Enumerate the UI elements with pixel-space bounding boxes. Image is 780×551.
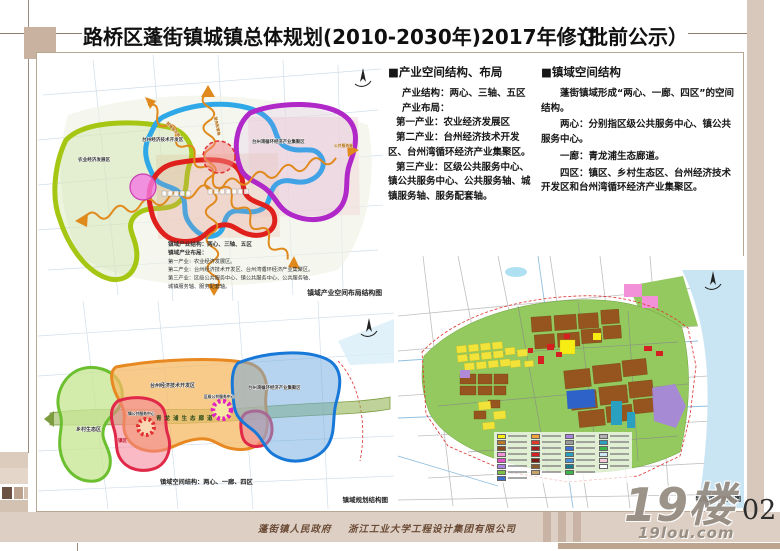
- legend-item: [565, 458, 595, 463]
- legend-swatch: [497, 434, 506, 440]
- plan-poster-page: 路桥区蓬街镇城镇总体规划(2010-2030年)2017年修订 （批前公示）: [0, 0, 780, 551]
- svg-text:第一产业：农业经济发展区。: 第一产业：农业经济发展区。: [168, 257, 235, 265]
- legend-column: [497, 434, 527, 481]
- district-center-label: 区级公共服务中心: [204, 394, 235, 399]
- sea-sliver: [338, 319, 394, 365]
- legend-swatch: [497, 452, 506, 458]
- legend-item: [531, 440, 561, 445]
- legend-item: [497, 476, 527, 481]
- legend-item: [497, 440, 527, 445]
- domain-paragraph: 一廊：青龙浦生态廊道。: [541, 150, 739, 165]
- public-axis-label: 公共服务轴: [334, 143, 353, 148]
- domain-paragraph: 四区：镇区、乡村生态区、台州经济技术开发区和台州湾循环经济产业集聚区。: [541, 167, 739, 196]
- legend-item: [565, 440, 595, 445]
- legend-column: [599, 434, 629, 481]
- svg-text:第二产业：台州经济技术开发区、台州湾循环经济产业集聚区。: 第二产业：台州经济技术开发区、台州湾循环经济产业集聚区。: [168, 265, 313, 273]
- legend-swatch: [497, 464, 506, 470]
- industry-line: 第三产业：区级公共服务中心、镇公共服务中心、公共服务轴、城镇服务轴、服务配套轴。: [388, 161, 538, 205]
- legend-swatch: [565, 446, 574, 452]
- legend-label-line: [542, 459, 561, 461]
- legend-swatch: [599, 434, 608, 440]
- town-zone-label: 镇区: [118, 437, 127, 444]
- legend-label-line: [610, 465, 629, 467]
- legend-label-line: [610, 447, 629, 449]
- mosaic-square: [24, 487, 28, 499]
- structure-inner-caption: 镇域空间结构：两心、一廊、四区: [160, 478, 254, 486]
- agriculture-zone-label: 农业经济发展区: [77, 156, 111, 163]
- industry-zone-label: 台州湾循环经济产业集聚区: [248, 384, 301, 391]
- legend-swatch: [531, 464, 540, 470]
- frame-line-title: [56, 33, 82, 34]
- mosaic-square: [0, 452, 28, 468]
- right-bar: [747, 0, 764, 512]
- legend-label-line: [508, 465, 527, 467]
- svg-text:镇域产业结构：两心、三轴、五区: 镇域产业结构：两心、三轴、五区: [168, 240, 252, 248]
- page-number: 02: [742, 495, 776, 526]
- watermark-logo: 19楼: [624, 482, 734, 528]
- domain-paragraph: 两心：分别指区级公共服务中心、镇公共服务中心。: [541, 118, 739, 147]
- legend-label-line: [610, 453, 629, 455]
- legend-item: [531, 434, 561, 439]
- commercial-block-small: [593, 333, 601, 340]
- legend-item: [599, 446, 629, 451]
- structure-map-caption: 镇域规划结构图: [343, 495, 389, 504]
- legend-item: [531, 458, 561, 463]
- footer-underline: [558, 543, 780, 549]
- legend-swatch: [531, 440, 540, 446]
- corridor-label: 青龙浦生态廊道: [156, 414, 216, 422]
- watermark-site: 19lou.com: [638, 524, 735, 542]
- svg-text:第三产业：区级公共服务中心、镇公共服务中心、公共服务轴、: 第三产业：区级公共服务中心、镇公共服务中心、公共服务轴、: [168, 274, 313, 282]
- domain-paragraph: 蓬街镇域形成“两心、一廊、四区”的空间结构。: [541, 87, 739, 116]
- page-title: 路桥区蓬街镇城镇总体规划(2010-2030年)2017年修订: [83, 21, 597, 50]
- legend-label-line: [508, 477, 527, 479]
- footer-government: 蓬街镇人民政府: [258, 521, 332, 535]
- town-zone: [111, 398, 169, 471]
- svg-text:镇域产业布局：: 镇域产业布局：: [168, 248, 207, 256]
- corridor-arrow: [44, 411, 54, 427]
- legend-label-line: [576, 471, 595, 473]
- frame-line-right: [688, 33, 747, 34]
- legend-label-line: [542, 453, 561, 455]
- landuse-legend: [494, 432, 632, 483]
- legend-swatch: [497, 458, 506, 464]
- legend-label-line: [576, 441, 595, 443]
- tech-zone-label: 台州经济技术开发区: [150, 382, 195, 389]
- legend-item: [565, 464, 595, 469]
- legend-label-line: [508, 441, 527, 443]
- district-center-marker: [203, 141, 235, 173]
- rural-zone-label: 乡村生态区: [76, 426, 101, 433]
- mosaic-square: [14, 487, 23, 499]
- blue-parcel: [566, 389, 595, 409]
- legend-item: [497, 470, 527, 475]
- legend-label-line: [576, 435, 595, 437]
- pond: [505, 267, 527, 277]
- legend-swatch: [565, 434, 574, 440]
- legend-label-line: [508, 447, 527, 449]
- legend-item: [599, 440, 629, 445]
- legend-swatch: [565, 452, 574, 458]
- legend-item: [497, 464, 527, 469]
- legend-item: [531, 470, 561, 475]
- industry-line: 第一产业：农业经济发展区: [388, 116, 538, 131]
- legend-label-line: [610, 459, 629, 461]
- legend-item: [565, 434, 595, 439]
- town-center-label: 镇公共服务中心: [128, 411, 155, 416]
- industry-section: ■产业空间结构、布局 产业结构：两心、三轴、五区 产业布局： 第一产业：农业经济…: [388, 64, 538, 205]
- legend-swatch: [599, 452, 608, 458]
- legend-swatch: [497, 446, 506, 452]
- legend-item: [565, 470, 595, 475]
- svg-text:城镇服务轴、服务配套轴。: 城镇服务轴、服务配套轴。: [168, 282, 230, 290]
- legend-item: [599, 434, 629, 439]
- town-center-marker: [130, 174, 156, 200]
- legend-item: [565, 452, 595, 457]
- footer-vline: [77, 543, 78, 551]
- legend-item: [497, 458, 527, 463]
- legend-label-line: [508, 459, 527, 461]
- legend-swatch: [565, 464, 574, 470]
- legend-item: [599, 464, 629, 469]
- domain-section: ■镇域空间结构 蓬街镇域形成“两心、一廊、四区”的空间结构。 两心：分别指区级公…: [541, 64, 739, 198]
- legend-swatch: [497, 470, 506, 476]
- legend-swatch: [531, 458, 540, 464]
- legend-swatch: [599, 458, 608, 464]
- legend-label-line: [576, 453, 595, 455]
- purple-parcel-small: [460, 370, 470, 378]
- legend-label-line: [508, 435, 527, 437]
- legend-swatch: [565, 458, 574, 464]
- legend-swatch: [599, 446, 608, 452]
- legend-label-line: [542, 441, 561, 443]
- industry-map: 农业经济发展区 台州经济技术开发区 台州湾循环经济产业集聚区 公共服务轴 城镇服…: [38, 55, 386, 301]
- footer-tick: [573, 512, 581, 542]
- legend-label-line: [576, 459, 595, 461]
- page-subtitle: （批前公示）: [568, 21, 688, 50]
- legend-label-line: [610, 435, 629, 437]
- legend-label-line: [610, 441, 629, 443]
- legend-label-line: [576, 447, 595, 449]
- legend-item: [599, 458, 629, 463]
- legend-swatch: [531, 452, 540, 458]
- legend-label-line: [542, 447, 561, 449]
- circular-zone-label: 台州湾循环经济产业集聚区: [252, 138, 305, 145]
- legend-item: [599, 452, 629, 457]
- legend-item: [497, 452, 527, 457]
- footer-company: 浙江工业大学工程设计集团有限公司: [348, 521, 516, 535]
- industry-map-caption: 镇域产业空间布局结构图: [307, 288, 382, 297]
- town-service-center-marker: [138, 419, 154, 435]
- legend-item: [531, 464, 561, 469]
- mosaic-square: [0, 500, 28, 512]
- legend-label-line: [508, 471, 527, 473]
- frame-line-left: [0, 33, 24, 34]
- legend-swatch: [565, 470, 574, 476]
- structure-map: 乡村生态区 台州经济技术开发区 台州湾循环经济产业集聚区 区级公共服务中心 镇公…: [38, 301, 394, 509]
- legend-swatch: [531, 470, 540, 476]
- legend-label-line: [508, 453, 527, 455]
- legend-swatch: [599, 464, 608, 470]
- industry-section-heading: ■产业空间结构、布局: [388, 64, 538, 80]
- legend-swatch: [599, 440, 608, 446]
- legend-swatch: [531, 446, 540, 452]
- footer-tick: [558, 512, 566, 542]
- commercial-block: [560, 340, 575, 354]
- legend-swatch: [565, 440, 574, 446]
- legend-swatch: [497, 440, 506, 446]
- legend-swatch: [497, 476, 506, 482]
- legend-label-line: [576, 465, 595, 467]
- legend-column: [531, 434, 561, 481]
- district-service-center-marker: [213, 401, 231, 419]
- legend-swatch: [531, 434, 540, 440]
- legend-item: [497, 446, 527, 451]
- industry-line: 产业布局：: [388, 102, 538, 117]
- legend-item: [497, 434, 527, 439]
- legend-item: [531, 446, 561, 451]
- legend-label-line: [542, 435, 561, 437]
- mosaic-square: [0, 468, 28, 484]
- footer-tick: [543, 512, 551, 542]
- industry-line: 产业结构：两心、三轴、五区: [388, 87, 538, 102]
- legend-item: [531, 452, 561, 457]
- industry-line: 第二产业：台州经济技术开发区、台州湾循环经济产业集聚区。: [388, 131, 538, 160]
- frame-line-vertical: [28, 0, 29, 453]
- legend-label-line: [542, 471, 561, 473]
- legend-item: [565, 446, 595, 451]
- mosaic-square-dark: [2, 487, 12, 499]
- legend-label-line: [542, 465, 561, 467]
- domain-section-heading: ■镇域空间结构: [541, 64, 739, 80]
- legend-column: [565, 434, 595, 481]
